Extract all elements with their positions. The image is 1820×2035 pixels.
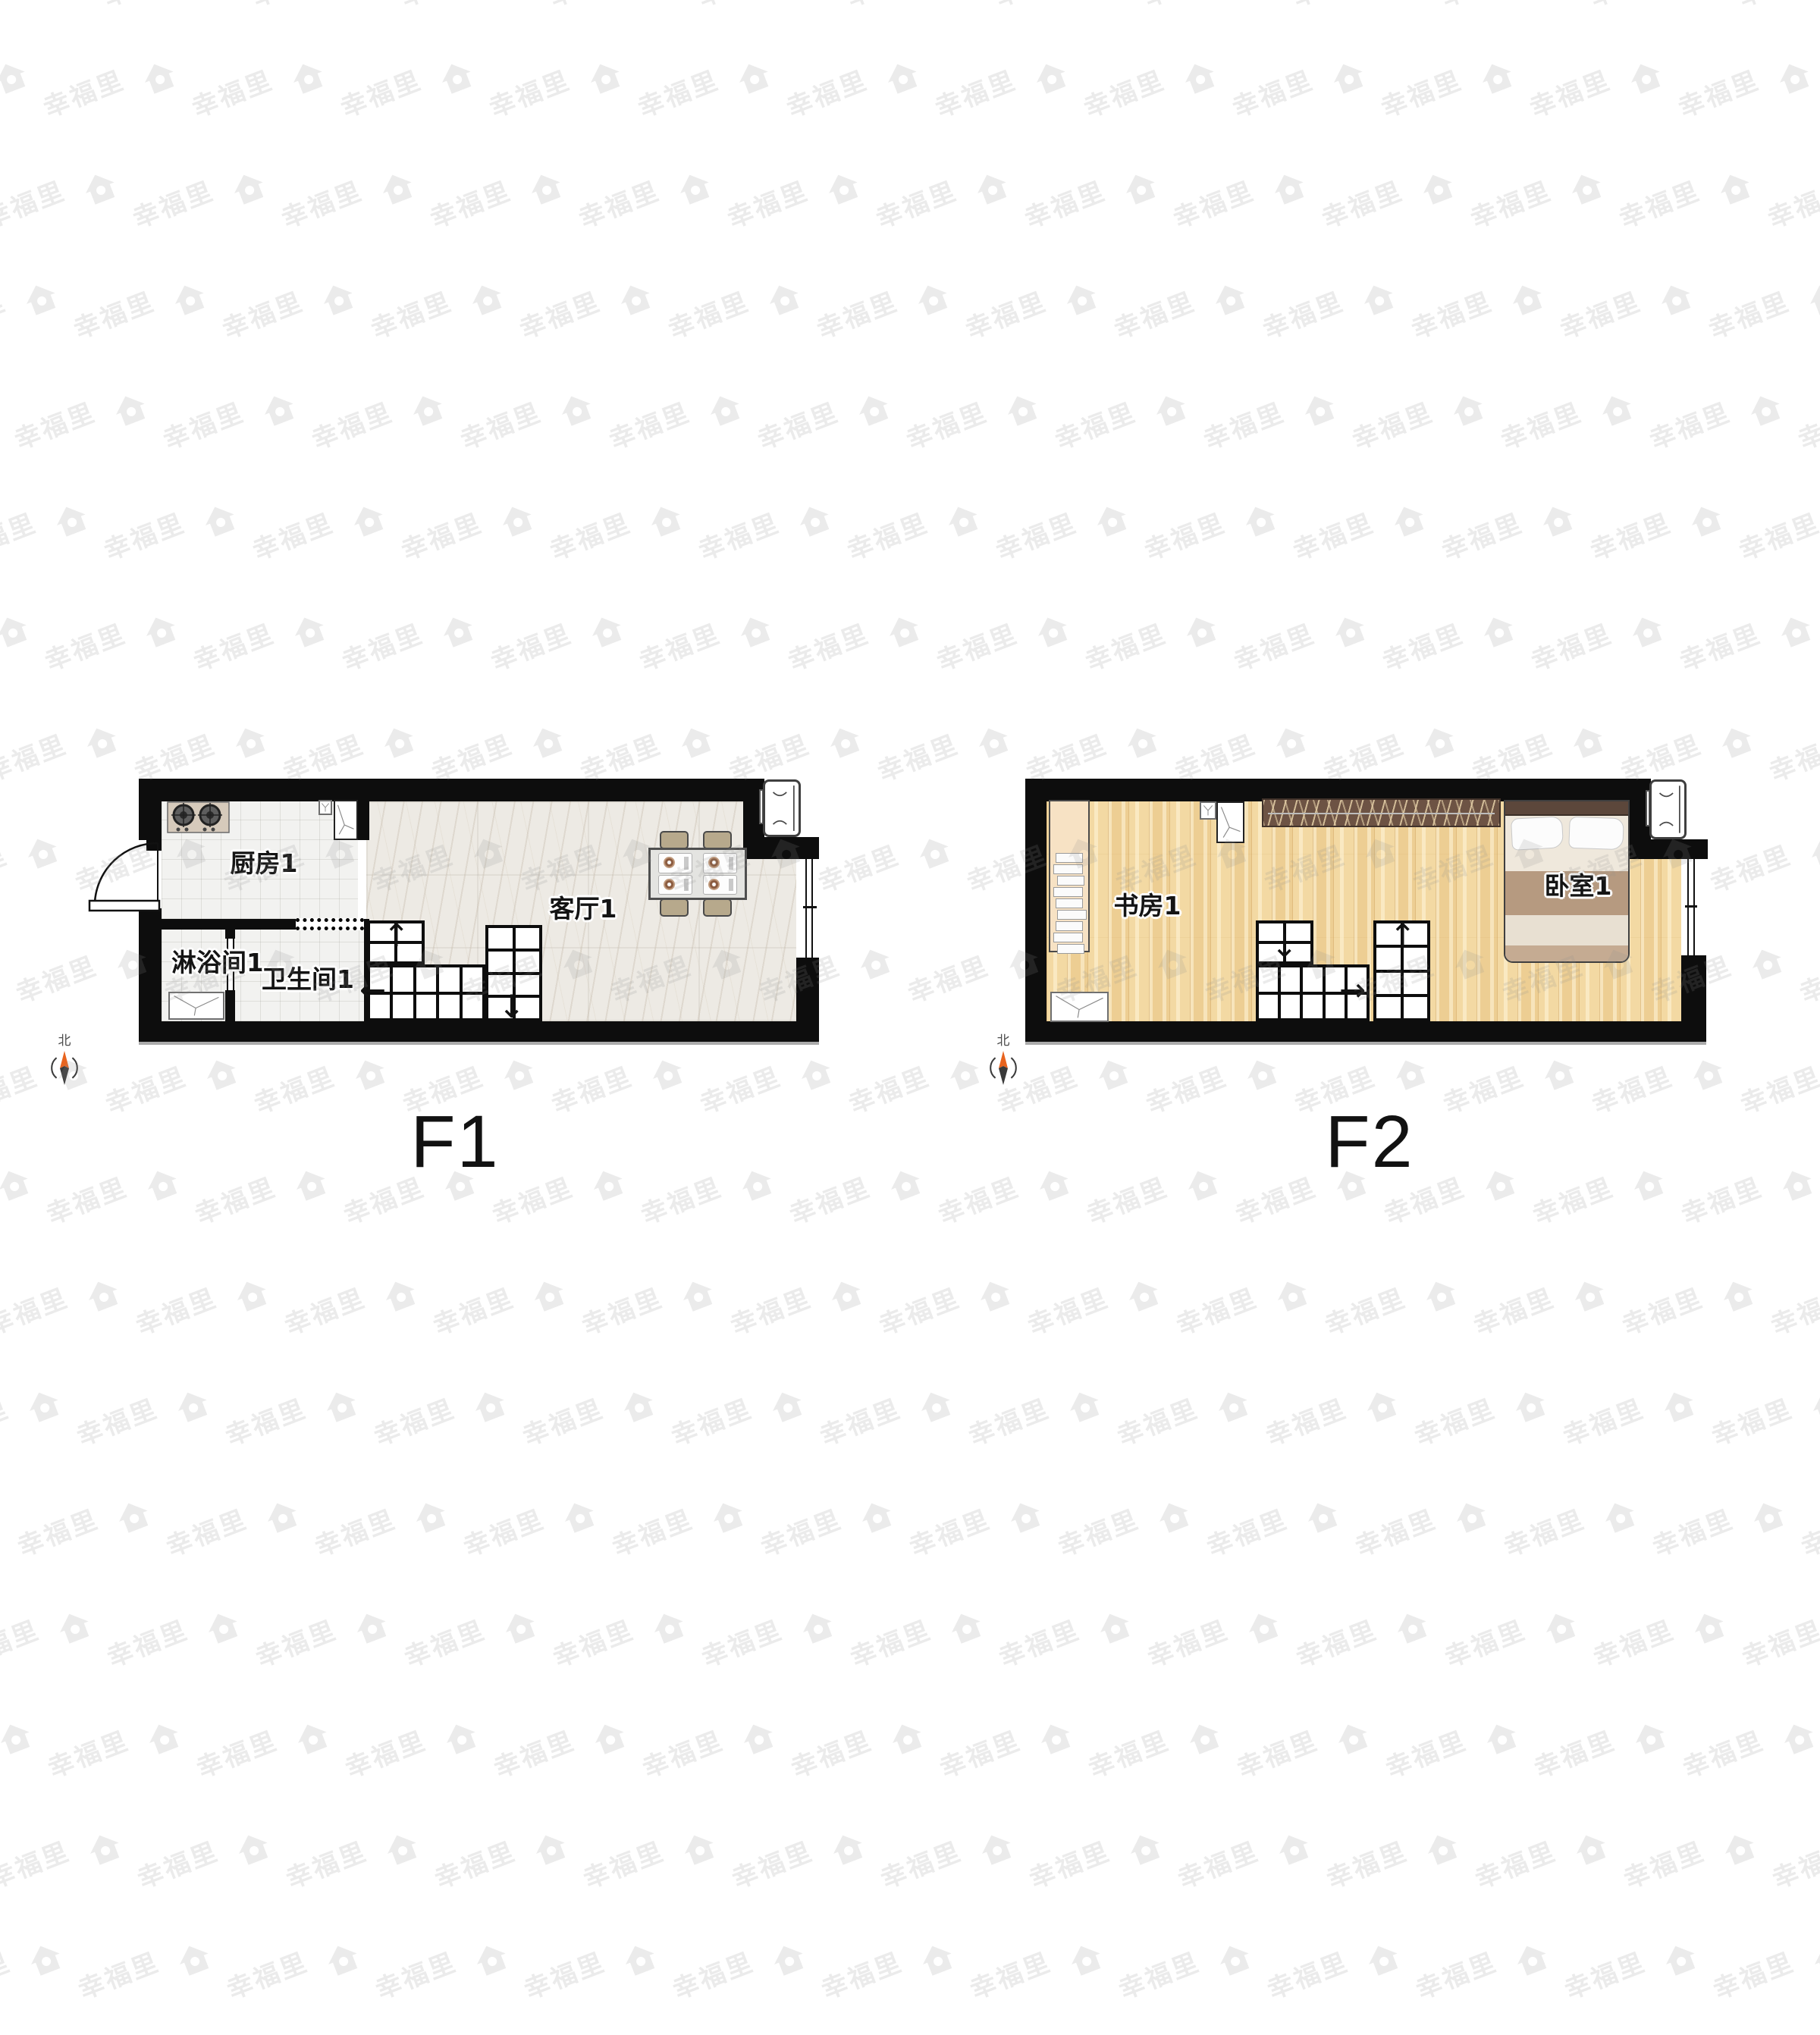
watermark-item: 幸福里 (1018, 141, 1199, 265)
watermark-text: 幸福里 (40, 1167, 132, 1232)
watermark-house-icon (1360, 1384, 1403, 1427)
watermark-text: 幸福里 (1795, 1499, 1820, 1564)
watermark-house-icon (290, 1716, 334, 1759)
watermark-text: 幸福里 (573, 171, 664, 236)
watermark-item: 幸福里 (72, 1912, 253, 2035)
watermark-house-icon (1003, 1494, 1046, 1538)
watermark-text: 幸福里 (0, 0, 39, 14)
bed-pillow (1568, 817, 1624, 850)
watermark-house-icon (1654, 277, 1697, 320)
watermark-text: 幸福里 (1762, 171, 1820, 236)
living-room-label: 客厅1 (522, 895, 644, 923)
watermark-text: 幸福里 (726, 1831, 817, 1896)
watermark-item: 幸福里 (0, 1248, 162, 1372)
watermark-item: 幸福里 (1734, 1027, 1820, 1150)
watermark-item: 幸福里 (1792, 362, 1820, 486)
watermark-item: 幸福里 (0, 473, 130, 597)
watermark-item: 幸福里 (1558, 1912, 1739, 2035)
watermark-house-icon (436, 609, 479, 652)
watermark-item: 幸福里 (216, 252, 397, 375)
watermark-house-icon (377, 720, 420, 763)
watermark-item: 幸福里 (721, 141, 902, 265)
watermark-house-icon (140, 1162, 184, 1206)
watermark-text: 幸福里 (785, 1720, 877, 1786)
right-window-mullion (1685, 905, 1697, 908)
watermark-item: 幸福里 (964, 1912, 1144, 2035)
watermark-house-icon (970, 166, 1013, 209)
watermark-house-icon (1686, 1052, 1729, 1095)
watermark-text: 幸福里 (245, 0, 337, 14)
wall-below-ac (1649, 839, 1708, 859)
watermark-item: 幸福里 (1702, 252, 1820, 375)
watermark-item: 幸福里 (516, 1359, 697, 1482)
watermark-house-icon (585, 609, 628, 652)
watermark-text: 幸福里 (0, 281, 11, 346)
watermark-item: 幸福里 (815, 1912, 996, 2035)
watermark-item: 幸福里 (101, 1580, 281, 1704)
watermark-text: 幸福里 (874, 1831, 966, 1896)
watermark-house-icon (735, 1162, 778, 1206)
watermark-house-icon (767, 1937, 810, 1980)
watermark-text: 幸福里 (929, 60, 1021, 125)
watermark-item: 幸福里 (1349, 1469, 1530, 1593)
watermark-house-icon (319, 1384, 362, 1427)
watermark-house-icon (52, 1605, 96, 1648)
watermark-item: 幸福里 (635, 1137, 815, 1261)
watermark-house-icon (78, 166, 121, 209)
watermark-house-icon (524, 166, 567, 209)
watermark-text: 幸福里 (398, 1610, 490, 1675)
wardrobe-rail (1268, 813, 1495, 814)
watermark-text: 幸福里 (844, 1610, 936, 1675)
watermark-house-icon (880, 55, 924, 99)
watermark-house-icon (24, 1937, 67, 1980)
bookshelf (1049, 800, 1090, 952)
watermark-text: 幸福里 (603, 392, 695, 457)
watermark-text: 幸福里 (275, 171, 367, 236)
watermark-item: 幸福里 (127, 141, 307, 265)
watermark-house-icon (824, 1273, 868, 1316)
bottom-wall (139, 1021, 819, 1042)
top-wall (139, 779, 764, 801)
watermark-item: 幸福里 (1704, 805, 1820, 929)
watermark-text: 幸福里 (0, 171, 70, 236)
watermark-house-icon (674, 720, 717, 763)
watermark-item: 幸福里 (309, 1469, 489, 1593)
watermark-text: 幸福里 (724, 1278, 816, 1343)
watermark-text: 幸福里 (39, 613, 130, 679)
watermark-item: 幸福里 (1583, 0, 1763, 42)
watermark-item: 幸福里 (0, 1691, 74, 1814)
watermark-text: 幸福里 (547, 1610, 639, 1675)
watermark-house-icon (1301, 1494, 1344, 1538)
watermark-house-icon (673, 166, 716, 209)
watermark-item: 幸福里 (841, 473, 1021, 597)
place-setting (703, 853, 737, 873)
watermark-item: 幸福里 (576, 1248, 756, 1372)
watermark-item: 幸福里 (454, 362, 635, 486)
floorplan-image: { "brand": { "watermark_text": "幸福里" }, … (0, 0, 1820, 1820)
watermark-text: 幸福里 (752, 392, 843, 457)
wardrobe (1262, 798, 1501, 827)
watermark-item: 幸福里 (812, 805, 993, 929)
watermark-house-icon (1238, 498, 1282, 541)
watermark-house-icon (1505, 277, 1549, 320)
watermark-item: 幸福里 (130, 1248, 310, 1372)
watermark-item: 幸福里 (1375, 30, 1555, 154)
watermark-text: 幸福里 (1618, 1831, 1709, 1896)
watermark-item: 幸福里 (930, 584, 1111, 707)
watermark-text: 幸福里 (1733, 503, 1820, 568)
watermark-item: 幸福里 (1376, 584, 1557, 707)
watermark-house-icon (677, 1826, 720, 1870)
watermark-item: 幸福里 (245, 0, 425, 42)
watermark-house-icon (526, 720, 569, 763)
watermark-house-icon (826, 1826, 869, 1870)
watermark-house-icon (19, 277, 62, 320)
watermark-item: 幸福里 (1464, 141, 1645, 265)
watermark-item: 幸福里 (0, 0, 128, 42)
watermark-house-icon (22, 1384, 65, 1427)
watermark-house-icon (1328, 609, 1371, 652)
watermark-house-icon (1803, 277, 1820, 320)
watermark-text: 幸福里 (900, 392, 992, 457)
watermark-house-icon (1657, 1384, 1700, 1427)
watermark-text: 幸福里 (1021, 1278, 1113, 1343)
watermark-item: 幸福里 (518, 1912, 698, 2035)
watermark-text: 幸福里 (483, 60, 575, 125)
watermark-house-icon (1687, 1605, 1731, 1648)
watermark-item: 幸福里 (221, 1912, 401, 2035)
watermark-item: 幸福里 (988, 0, 1169, 42)
watermark-text: 幸福里 (993, 1610, 1084, 1675)
watermark-house-icon (347, 498, 390, 541)
watermark-house-icon (853, 941, 896, 984)
watermark-text: 幸福里 (221, 1942, 312, 2007)
watermark-house-icon (1149, 387, 1192, 431)
watermark-item: 幸福里 (1137, 0, 1317, 42)
watermark-house-icon (1478, 1162, 1521, 1206)
watermark-house-icon (1628, 1716, 1671, 1759)
watermark-house-icon (1119, 166, 1162, 209)
watermark-house-icon (885, 1716, 928, 1759)
watermark-text: 幸福里 (339, 1720, 431, 1786)
floorplan-f2: ↓ → ↑ 书房1 卧室1 (1025, 779, 1708, 1046)
watermark-house-icon (49, 498, 93, 541)
watermark-text: 幸福里 (1226, 60, 1318, 125)
watermark-text: 幸福里 (873, 1278, 965, 1343)
watermark-house-icon (0, 55, 32, 99)
watermark-item: 幸福里 (483, 30, 664, 154)
watermark-text: 幸福里 (187, 613, 279, 679)
watermark-item: 幸福里 (1672, 30, 1820, 154)
watermark-text: 幸福里 (1584, 503, 1676, 568)
watermark-house-icon (350, 1605, 393, 1648)
compass-icon (45, 1049, 83, 1086)
watermark-item: 幸福里 (636, 1691, 817, 1814)
watermark-house-icon (0, 941, 5, 984)
watermark-item: 幸福里 (0, 30, 69, 154)
watermark-text: 幸福里 (695, 1610, 787, 1675)
wall-below-ac (764, 837, 819, 859)
watermark-item: 幸福里 (903, 1469, 1084, 1593)
watermark-house-icon (882, 609, 925, 652)
watermark-item: 幸福里 (1287, 473, 1467, 597)
watermark-house-icon (1564, 166, 1608, 209)
watermark-item: 幸福里 (98, 473, 278, 597)
watermark-text: 幸福里 (37, 60, 129, 125)
shower-tray (168, 992, 224, 1020)
watermark-item: 幸福里 (873, 1248, 1053, 1372)
watermark-item: 幸福里 (1523, 30, 1704, 154)
compass-f1: 北 (45, 1033, 84, 1090)
watermark-item: 幸福里 (0, 1359, 102, 1482)
watermark-text: 幸福里 (721, 171, 813, 236)
watermark-item: 幸福里 (427, 1248, 607, 1372)
watermark-item: 幸福里 (1141, 1580, 1322, 1704)
watermark-house-icon (137, 55, 180, 99)
watermark-house-icon (1566, 720, 1609, 763)
watermark-text: 幸福里 (248, 1056, 340, 1121)
bottom-wall (1025, 1021, 1706, 1042)
watermark-house-icon (588, 1716, 631, 1759)
watermark-house-icon (736, 1716, 780, 1759)
watermark-house-icon (439, 1716, 482, 1759)
stairs-down-arrow: ↓ (1271, 930, 1298, 962)
watermark-text: 幸福里 (841, 503, 933, 568)
watermark-text: 幸福里 (131, 1831, 223, 1896)
watermark-text: 幸福里 (454, 392, 546, 457)
watermark-house-icon (380, 1826, 423, 1870)
watermark-text: 幸福里 (0, 724, 71, 789)
watermark-text: 幸福里 (902, 945, 993, 1011)
watermark-text: 幸福里 (812, 835, 904, 900)
watermark-item: 幸福里 (1646, 1469, 1820, 1593)
watermark-house-icon (375, 166, 419, 209)
watermark-house-icon (172, 1937, 215, 1980)
watermark-item: 幸福里 (1346, 362, 1527, 486)
floorplan-f1: ↑ ← ↓ 厨房1 客厅1 淋浴间1 卫生间1 (139, 779, 819, 1046)
dining-chair (660, 898, 689, 917)
watermark-house-icon (1772, 55, 1815, 99)
watermark-house-icon (1416, 166, 1459, 209)
watermark-item: 幸福里 (187, 584, 368, 707)
watermark-house-icon (171, 1384, 214, 1427)
watermark-text: 幸福里 (518, 1942, 610, 2007)
watermark-text: 幸福里 (98, 503, 190, 568)
watermark-text: 幸福里 (1172, 1831, 1263, 1896)
watermark-text: 幸福里 (1646, 1499, 1738, 1564)
watermark-house-icon (1208, 277, 1251, 320)
watermark-item: 幸福里 (1170, 1248, 1351, 1372)
watermark-house-icon (732, 55, 775, 99)
watermark-text: 幸福里 (1523, 60, 1615, 125)
watermark-house-icon (1390, 1605, 1433, 1648)
watermark-house-icon (1182, 1716, 1225, 1759)
watermark-text: 幸福里 (1410, 1942, 1501, 2007)
watermark-item: 幸福里 (0, 141, 10, 265)
right-wall-lower (796, 958, 819, 1021)
watermark-item: 幸福里 (695, 1580, 876, 1704)
watermark-house-icon (941, 498, 984, 541)
watermark-house-icon (228, 720, 271, 763)
watermark-house-icon (435, 55, 478, 99)
watermark-item: 幸福里 (0, 584, 71, 707)
watermark-text: 幸福里 (1231, 1720, 1323, 1786)
watermark-text: 幸福里 (1586, 1056, 1677, 1121)
watermark-house-icon (1090, 498, 1133, 541)
watermark-house-icon (703, 387, 746, 431)
watermark-text: 幸福里 (1736, 1610, 1820, 1675)
watermark-item: 幸福里 (0, 695, 11, 818)
watermark-item: 幸福里 (547, 1580, 727, 1704)
watermark-text: 幸福里 (871, 724, 963, 789)
watermark-item: 幸福里 (1643, 362, 1820, 486)
watermark-house-icon (1627, 1162, 1670, 1206)
watermark-text: 幸福里 (369, 1942, 461, 2007)
watermark-text: 幸福里 (962, 1388, 1054, 1453)
watermark-house-icon (1624, 55, 1667, 99)
bed-blanket-stripe (1505, 945, 1628, 963)
watermark-item: 幸福里 (1584, 473, 1765, 597)
watermark-item: 幸福里 (785, 1691, 965, 1814)
watermark-item: 幸福里 (1379, 1691, 1560, 1814)
watermark-text: 幸福里 (691, 0, 783, 14)
watermark-house-icon (1031, 609, 1074, 652)
watermark-item: 幸福里 (1081, 1137, 1261, 1261)
watermark-text: 幸福里 (1643, 392, 1735, 457)
watermark-house-icon (495, 498, 538, 541)
watermark-text: 幸福里 (1408, 1388, 1500, 1453)
watermark-house-icon (1746, 1494, 1790, 1538)
watermark-house-icon (1539, 1605, 1582, 1648)
kitchen-sink-small (318, 800, 332, 815)
watermark-text: 幸福里 (280, 1831, 372, 1896)
watermark-text: 幸福里 (1558, 1942, 1650, 2007)
watermark-house-icon (139, 609, 182, 652)
watermark-text: 幸福里 (839, 0, 931, 14)
watermark-item: 幸福里 (1319, 1248, 1499, 1372)
watermark-text: 幸福里 (1525, 613, 1617, 679)
watermark-text: 幸福里 (101, 1610, 193, 1675)
bedroom-label: 卧室1 (1517, 873, 1639, 900)
compass-north-label: 北 (45, 1033, 84, 1049)
watermark-item: 幸福里 (1762, 141, 1820, 265)
watermark-house-icon (142, 1716, 185, 1759)
watermark-text: 幸福里 (577, 1831, 669, 1896)
watermark-item: 幸福里 (1021, 1248, 1202, 1372)
watermark-text: 幸福里 (72, 1942, 164, 2007)
watermark-item: 幸福里 (1167, 141, 1348, 265)
watermark-house-icon (943, 1052, 986, 1095)
watermark-house-icon (529, 1826, 572, 1870)
watermark-text: 幸福里 (633, 613, 725, 679)
watermark-text: 幸福里 (0, 1278, 73, 1343)
watermark-item: 幸福里 (929, 30, 1109, 154)
watermark-item: 幸福里 (1231, 1691, 1411, 1814)
watermark-text: 幸福里 (903, 1499, 995, 1564)
right-window-glass-line (811, 859, 813, 958)
watermark-house-icon (1777, 1716, 1820, 1759)
watermark-house-icon (914, 1384, 957, 1427)
watermark-house-icon (613, 277, 657, 320)
watermark-item: 幸福里 (1765, 1248, 1820, 1372)
watermark-text: 幸福里 (1375, 60, 1467, 125)
watermark-text: 幸福里 (216, 281, 308, 346)
watermark-text: 幸福里 (1079, 613, 1171, 679)
watermark-text: 幸福里 (1023, 1831, 1115, 1896)
watermark-house-icon (201, 1605, 244, 1648)
watermark-text: 幸福里 (428, 1831, 520, 1896)
watermark-house-icon (583, 55, 626, 99)
watermark-text: 幸福里 (1498, 1499, 1589, 1564)
compass-icon (984, 1049, 1022, 1086)
watermark-text: 幸福里 (1320, 1831, 1412, 1896)
watermark-house-icon (733, 609, 777, 652)
watermark-text: 幸福里 (1290, 1610, 1382, 1675)
watermark-text: 幸福里 (870, 171, 962, 236)
watermark-item: 幸福里 (0, 362, 40, 486)
watermark-item: 幸福里 (424, 141, 604, 265)
watermark-text: 幸福里 (334, 60, 426, 125)
watermark-text: 幸福里 (513, 281, 605, 346)
watermark-house-icon (852, 387, 895, 431)
watermark-house-icon (497, 1052, 540, 1095)
watermark-item: 幸福里 (665, 1359, 846, 1482)
watermark-house-icon (1326, 55, 1370, 99)
watermark-item: 幸福里 (1108, 252, 1288, 375)
watermark-text: 幸福里 (814, 1388, 905, 1453)
watermark-text: 幸福里 (160, 1499, 252, 1564)
watermark-text: 幸福里 (96, 0, 188, 14)
watermark-text: 幸福里 (0, 503, 41, 568)
watermark-house-icon (1000, 387, 1043, 431)
watermark-text: 幸福里 (1108, 281, 1200, 346)
watermark-text: 幸福里 (1677, 1720, 1768, 1786)
watermark-text: 幸福里 (1557, 1388, 1649, 1453)
watermark-text: 幸福里 (8, 392, 100, 457)
watermark-text: 幸福里 (1049, 392, 1141, 457)
watermark-item: 幸福里 (1795, 1469, 1820, 1593)
bed-blanket-stripe (1505, 915, 1628, 945)
watermark-house-icon (821, 166, 864, 209)
watermark-house-icon (645, 1052, 689, 1095)
watermark-text: 幸福里 (667, 1942, 758, 2007)
watermark-house-icon (468, 1384, 511, 1427)
dining-chair (703, 831, 732, 849)
watermark-text: 幸福里 (1167, 171, 1259, 236)
watermark-house-icon (944, 1605, 987, 1648)
watermark-item: 幸福里 (1290, 1580, 1470, 1704)
watermark-text: 幸福里 (780, 60, 872, 125)
watermark-house-icon (1298, 387, 1341, 431)
watermark-text: 幸福里 (1469, 1831, 1561, 1896)
watermark-text: 幸福里 (0, 1942, 15, 2007)
watermark-text: 幸福里 (811, 281, 902, 346)
watermark-item: 幸福里 (811, 252, 991, 375)
watermark-house-icon (1598, 1494, 1641, 1538)
watermark-house-icon (795, 1605, 839, 1648)
watermark-text: 幸福里 (1285, 0, 1377, 14)
watermark-text: 幸福里 (130, 1278, 221, 1343)
watermark-item: 幸福里 (1410, 1912, 1590, 2035)
watermark-text: 幸福里 (1583, 0, 1674, 14)
watermark-house-icon (1716, 1273, 1759, 1316)
watermark-house-icon (0, 1716, 36, 1759)
watermark-house-icon (1062, 1384, 1106, 1427)
watermark-item: 幸福里 (844, 1580, 1025, 1704)
book-stack (1056, 853, 1083, 955)
